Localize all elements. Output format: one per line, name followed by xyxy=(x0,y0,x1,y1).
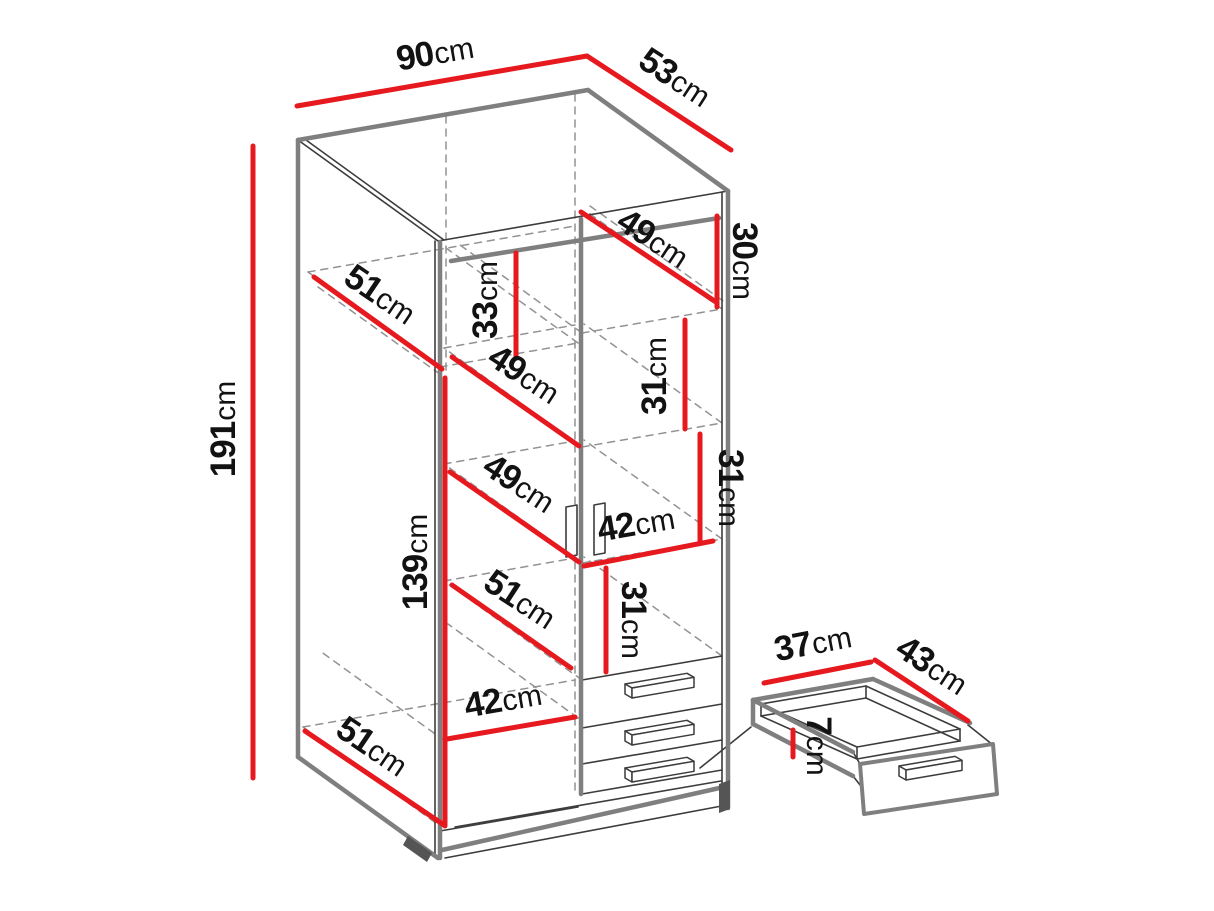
panel-edge xyxy=(582,656,722,680)
dimension-label-depth-inner-bottom: 51cm xyxy=(329,709,415,785)
dimension-label-depth-inner-top: 51cm xyxy=(337,257,423,333)
diagram-canvas: 90cm53cm191cm49cm30cm51cm33cm49cm31cm49c… xyxy=(0,0,1214,911)
drawer-edge xyxy=(968,725,993,745)
dimension-label-shelf-width-c: 51cm xyxy=(477,562,564,637)
dimension-label-drawer-height: 7cm xyxy=(799,716,838,775)
hanging-rod-bracket xyxy=(566,505,577,557)
dimension-label-shelf-height-c: 31cm xyxy=(614,581,653,659)
panel-edge xyxy=(298,140,438,241)
panel-edge xyxy=(700,727,751,768)
dimension-label-height-total: 191cm xyxy=(204,381,243,477)
cabinet-foot xyxy=(719,780,730,813)
dimension-label-shelf-width-a: 49cm xyxy=(481,337,568,412)
cabinet-outline-edge xyxy=(442,787,724,850)
panel-edge xyxy=(445,805,727,858)
dimension-label-hanging-height: 139cm xyxy=(396,514,435,610)
panel-edge xyxy=(582,704,722,728)
wardrobe-dimension-diagram: 90cm53cm191cm49cm30cm51cm33cm49cm31cm49c… xyxy=(0,0,1214,911)
dimension-label-right-col-width: 42cm xyxy=(594,498,678,550)
dimension-label-shelf-height-a: 31cm xyxy=(635,337,674,415)
dimension-label-top-shelf-height: 30cm xyxy=(725,222,764,300)
dimension-label-left-gap-height: 33cm xyxy=(466,261,505,339)
dimension-label-width-total: 90cm xyxy=(393,27,477,79)
dimension-label-drawer-width: 37cm xyxy=(771,616,855,669)
dimension-label-shelf-width-b: 49cm xyxy=(476,446,563,521)
panel-edge xyxy=(440,807,578,831)
panel-edge xyxy=(455,781,721,827)
panel-edge xyxy=(582,740,722,764)
dimension-labels-layer: 90cm53cm191cm49cm30cm51cm33cm49cm31cm49c… xyxy=(204,27,976,785)
dimension-label-top-shelf-width: 49cm xyxy=(610,201,697,276)
dimension-label-shelf-height-b: 31cm xyxy=(711,449,750,527)
panel-edge xyxy=(306,140,444,240)
dimension-label-depth-total: 53cm xyxy=(632,40,719,115)
hidden-edge xyxy=(582,309,722,333)
dimension-lines-layer xyxy=(253,56,968,826)
dimension-label-left-col-width: 42cm xyxy=(461,674,545,726)
